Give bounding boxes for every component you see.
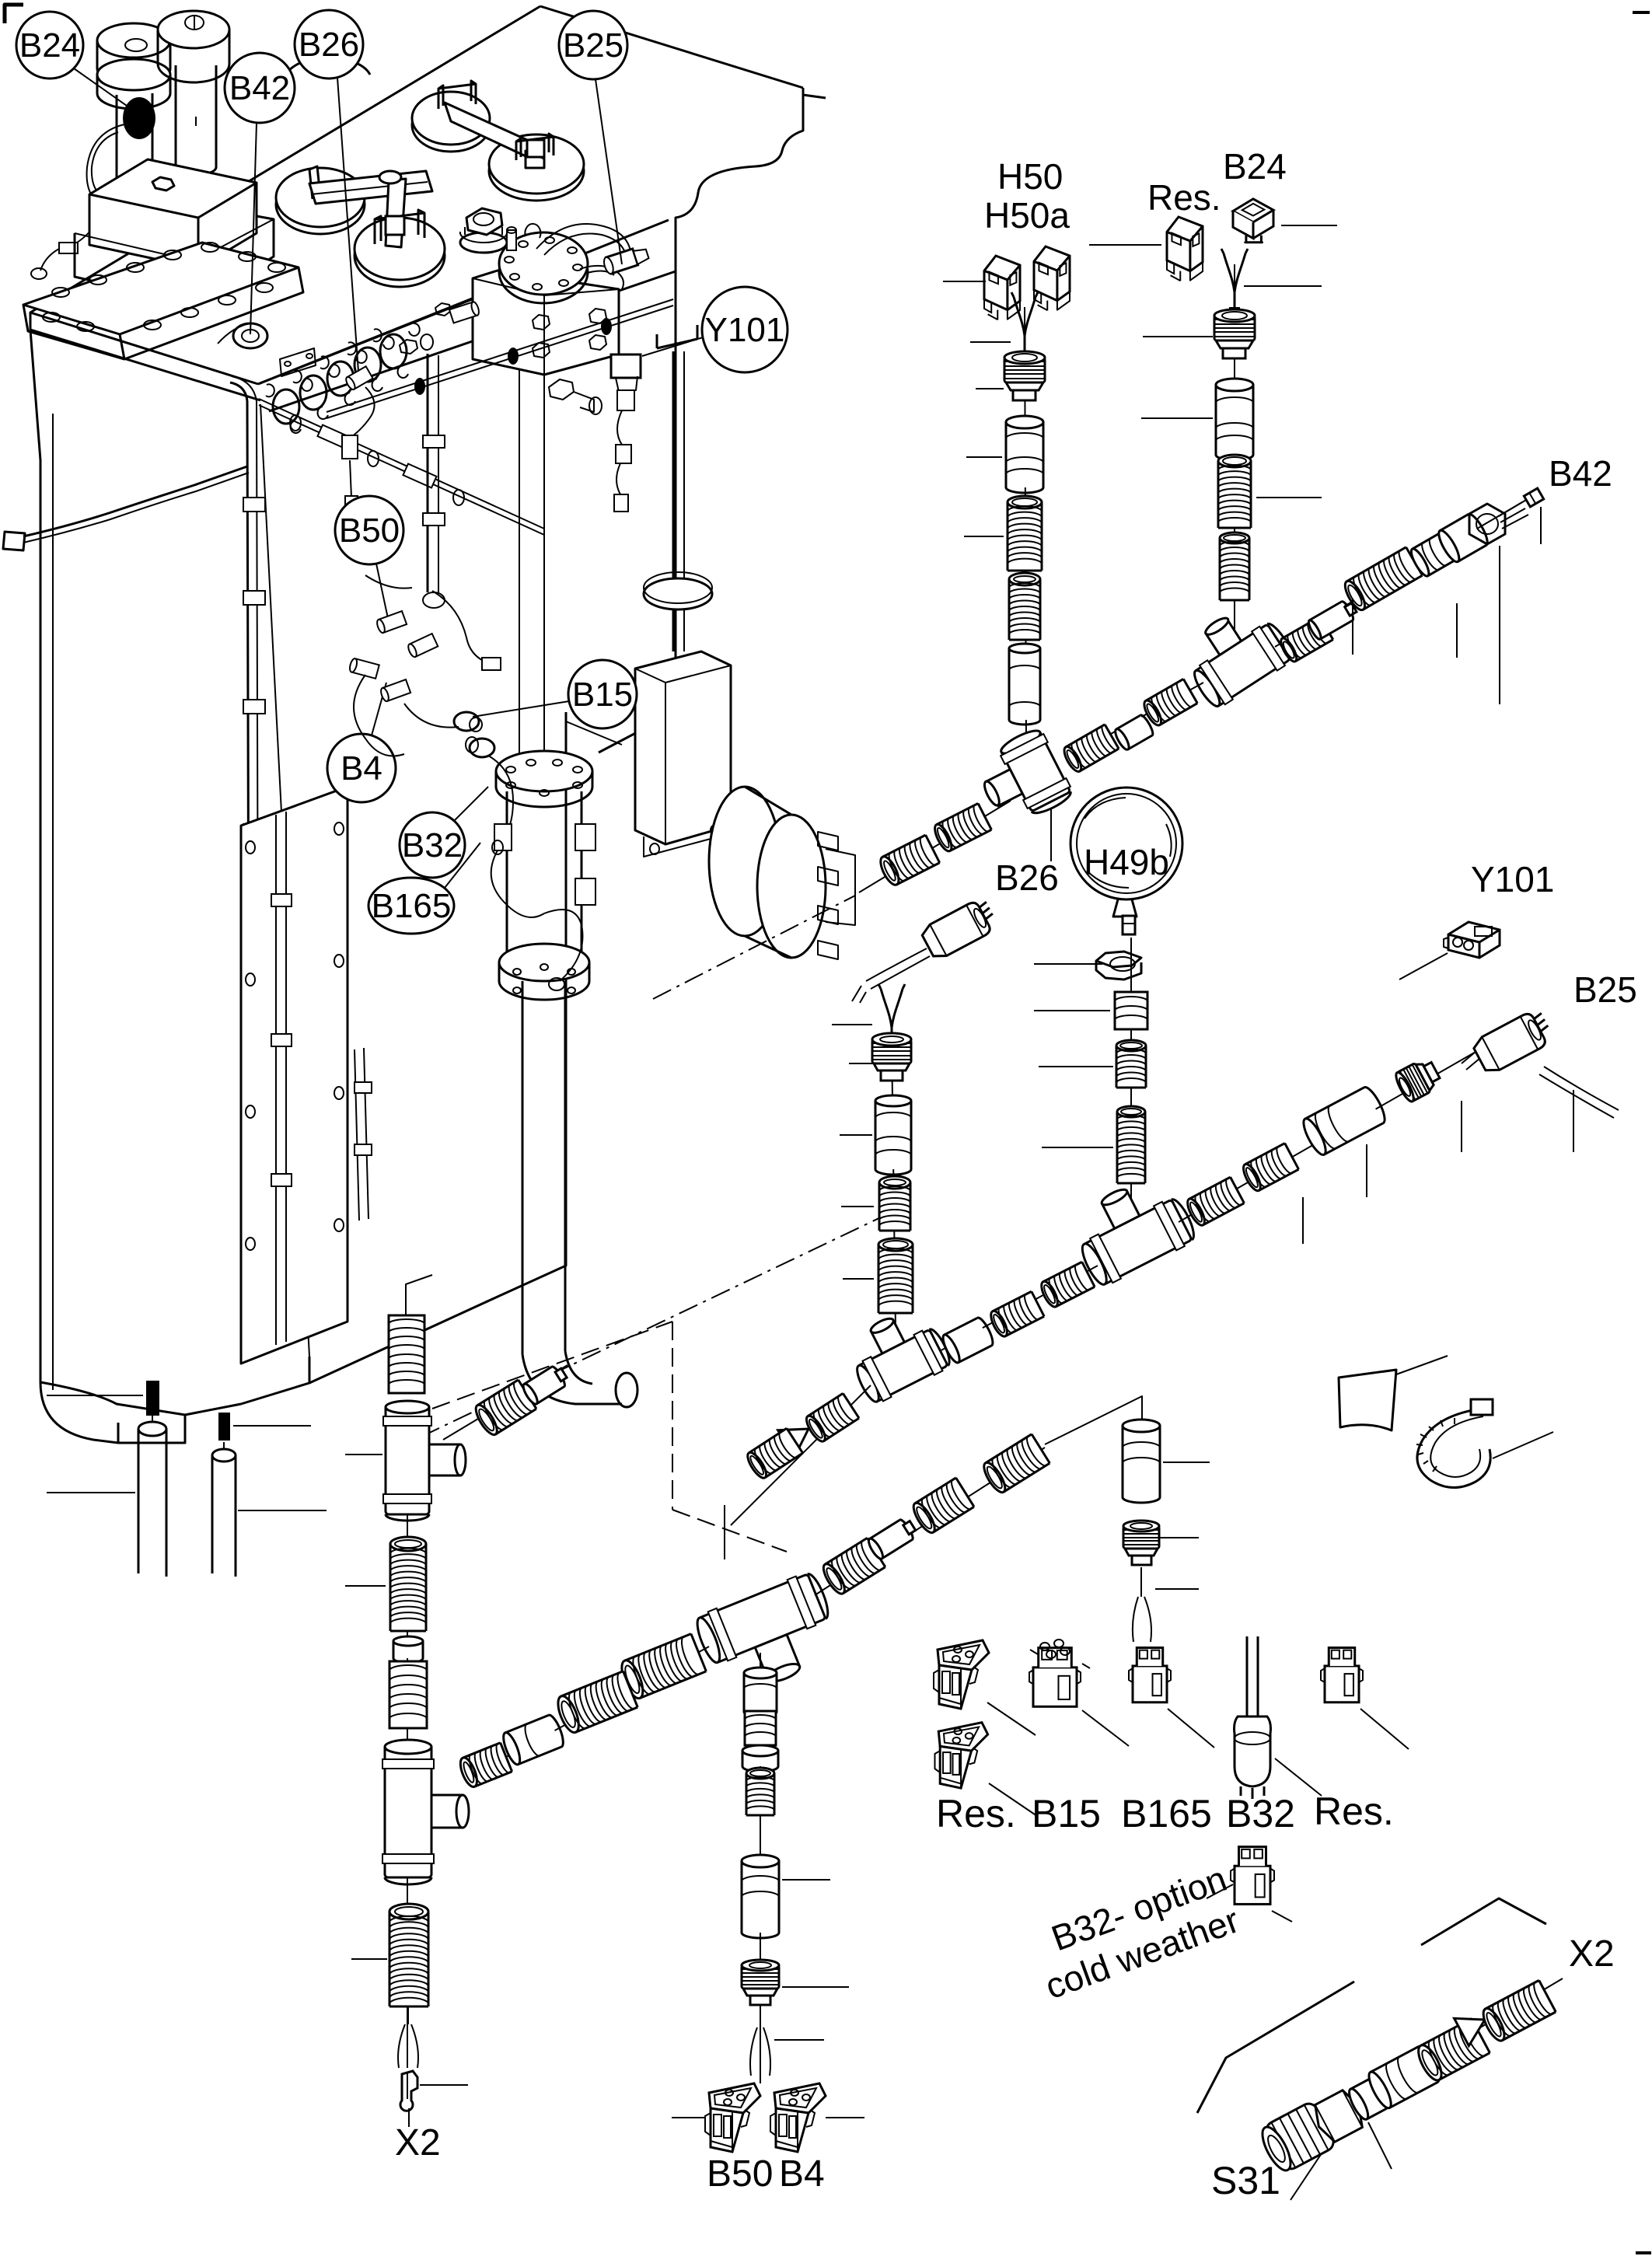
svg-text:B165: B165	[372, 887, 452, 925]
svg-text:B25: B25	[1573, 969, 1637, 1010]
svg-text:Res.: Res.	[1314, 1790, 1394, 1833]
svg-text:B42: B42	[229, 69, 290, 107]
svg-text:Y101: Y101	[1471, 859, 1554, 899]
svg-text:B32: B32	[402, 826, 463, 864]
svg-text:B15: B15	[572, 676, 633, 714]
svg-text:B15: B15	[1032, 1792, 1101, 1835]
svg-text:Y101: Y101	[705, 311, 785, 349]
svg-text:X2: X2	[1569, 1933, 1615, 1975]
svg-text:B26: B26	[995, 857, 1059, 898]
svg-text:B50: B50	[707, 2153, 773, 2195]
svg-text:B26: B26	[299, 26, 359, 64]
svg-text:B24: B24	[19, 26, 80, 65]
svg-text:Res.: Res.	[1147, 177, 1221, 218]
svg-text:H50a: H50a	[984, 195, 1070, 236]
svg-text:B24: B24	[1223, 146, 1287, 187]
svg-text:B42: B42	[1549, 453, 1612, 494]
svg-text:H49b: H49b	[1084, 842, 1169, 882]
svg-text:H50: H50	[997, 156, 1063, 197]
svg-text:B50: B50	[339, 512, 400, 550]
svg-text:B165: B165	[1121, 1792, 1212, 1835]
svg-text:B4: B4	[341, 749, 382, 788]
svg-text:B32: B32	[1226, 1792, 1295, 1835]
svg-text:Res.: Res.	[936, 1792, 1016, 1835]
svg-text:B4: B4	[779, 2153, 825, 2195]
svg-text:B25: B25	[563, 26, 623, 65]
svg-text:X2: X2	[395, 2122, 441, 2163]
svg-text:S31: S31	[1211, 2159, 1280, 2202]
